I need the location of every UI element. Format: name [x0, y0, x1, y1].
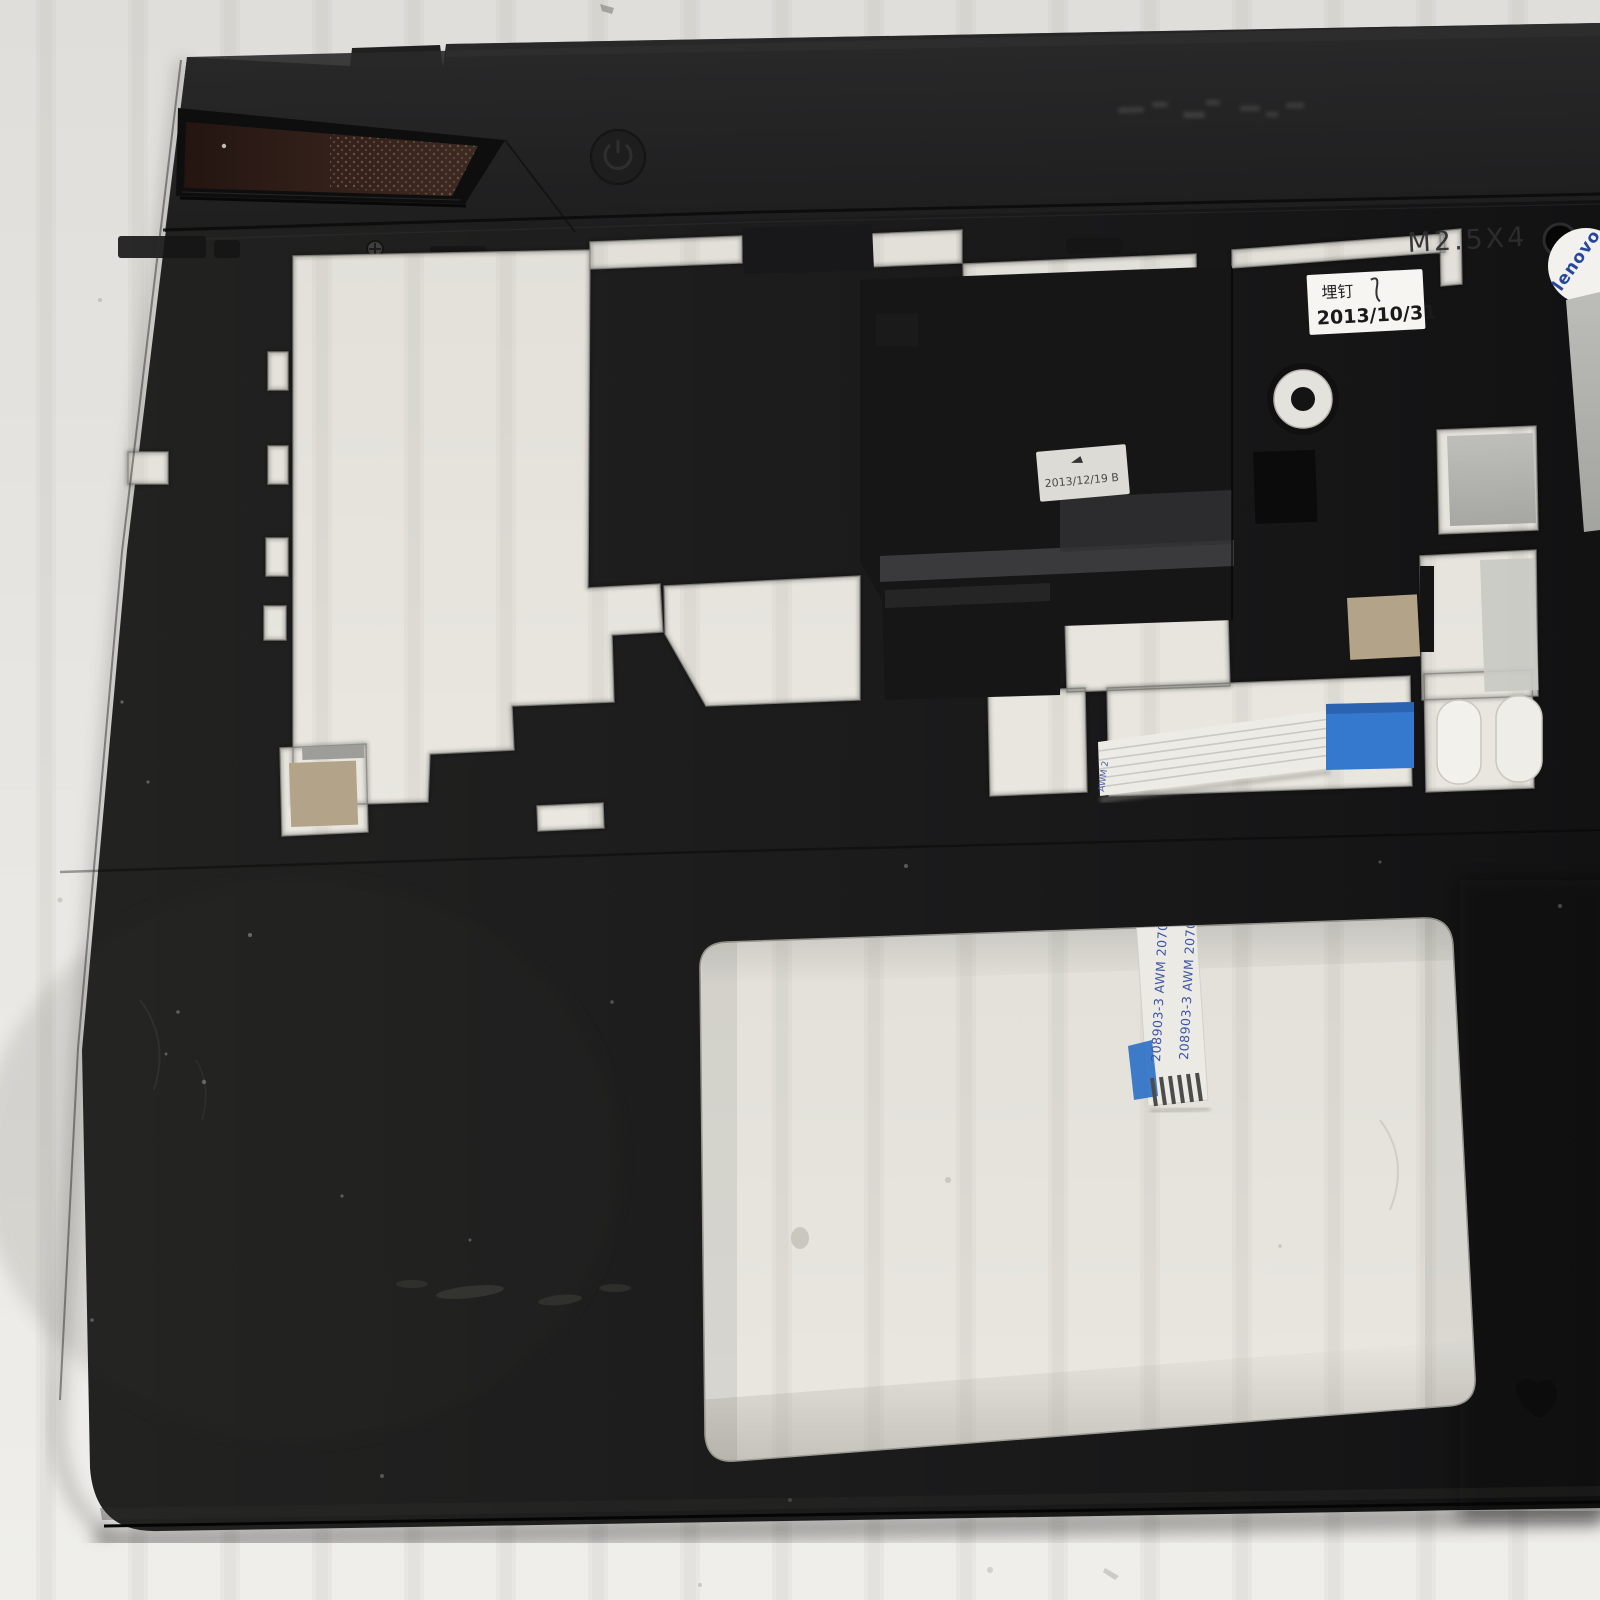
photo-canvas: AWM 2 [0, 0, 1600, 1600]
hook-notch [876, 314, 918, 346]
inspection-sticker: 2013/12/19 B [1036, 444, 1130, 502]
assembly-date-line1: 埋钉 [1321, 282, 1354, 303]
palm-right-shade [1460, 880, 1600, 1520]
gray-pad-upper [1447, 433, 1536, 526]
silver-strip [302, 745, 364, 760]
dark-recess [1253, 450, 1317, 524]
small-slot [1420, 566, 1434, 652]
grille-dust-speck [222, 144, 226, 148]
cardboard-smudge [791, 1227, 809, 1249]
palm-left-sheen [0, 880, 620, 1440]
photo-laptop-palmrest: AWM 2 [0, 0, 1600, 1600]
palmrest-part: AWM 2 [0, 23, 1600, 1531]
gloss-highlight-2 [1060, 490, 1232, 552]
assembly-date-sticker: 埋钉 2013/10/31 [1307, 268, 1438, 335]
screw-boss [1267, 363, 1339, 435]
touchpad-cutout: 208903-3 AWM 20706 105C 6 208903-3 AWM 2… [695, 860, 1480, 1480]
power-button [591, 130, 645, 184]
gray-pad-lower [1480, 558, 1539, 692]
top-bridge-tab [742, 224, 874, 274]
gold-foil-pad-right [1347, 594, 1420, 660]
embossed-screw-spec: M2.5X4 [1407, 222, 1528, 259]
gold-foil-pad-left [289, 761, 358, 827]
